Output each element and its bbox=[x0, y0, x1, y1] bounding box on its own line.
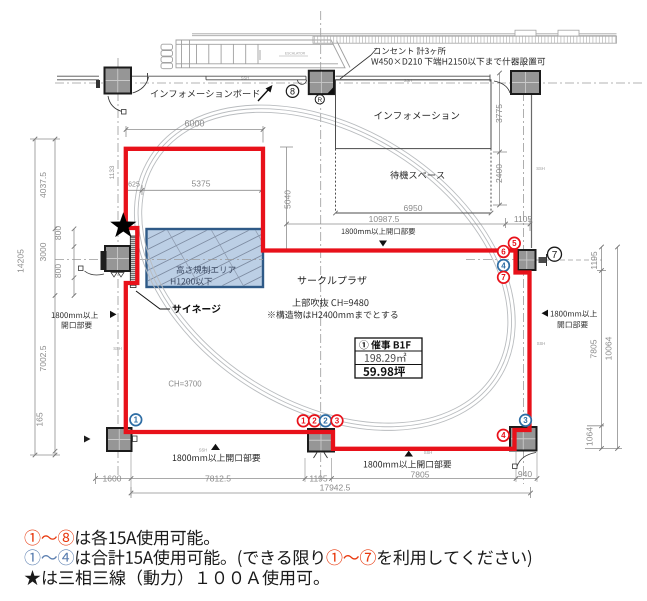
svg-text:7805: 7805 bbox=[589, 339, 599, 358]
svg-text:10064: 10064 bbox=[604, 336, 614, 360]
svg-text:940: 940 bbox=[518, 469, 532, 479]
svg-text:2400: 2400 bbox=[494, 164, 504, 183]
svg-text:CH=3700: CH=3700 bbox=[168, 380, 202, 389]
svg-text:R: R bbox=[318, 97, 323, 104]
svg-text:1133: 1133 bbox=[109, 165, 116, 179]
svg-text:3: 3 bbox=[523, 416, 528, 425]
svg-text:SSH: SSH bbox=[199, 448, 208, 453]
svg-text:4: 4 bbox=[501, 261, 506, 270]
svg-text:165: 165 bbox=[35, 412, 45, 426]
svg-text:6000: 6000 bbox=[184, 119, 204, 129]
svg-text:4: 4 bbox=[501, 431, 506, 440]
svg-text:SSH: SSH bbox=[537, 341, 546, 346]
svg-text:1195: 1195 bbox=[589, 251, 599, 270]
svg-text:10987.5: 10987.5 bbox=[369, 214, 400, 224]
svg-text:8: 8 bbox=[290, 87, 295, 97]
svg-text:7: 7 bbox=[501, 273, 506, 282]
svg-text:3000: 3000 bbox=[38, 242, 48, 261]
svg-text:625: 625 bbox=[128, 182, 140, 189]
svg-text:SSH: SSH bbox=[113, 346, 122, 351]
svg-text:ESCALATOR: ESCALATOR bbox=[285, 52, 306, 56]
svg-text:2: 2 bbox=[323, 417, 328, 426]
svg-text:6950: 6950 bbox=[404, 203, 423, 213]
svg-text:7: 7 bbox=[552, 250, 558, 261]
svg-text:5: 5 bbox=[512, 239, 517, 248]
svg-text:1: 1 bbox=[301, 417, 306, 426]
svg-text:4037.5: 4037.5 bbox=[38, 172, 48, 198]
svg-text:800: 800 bbox=[53, 226, 63, 240]
svg-text:1064: 1064 bbox=[585, 427, 595, 446]
svg-text:1600: 1600 bbox=[103, 474, 122, 484]
svg-text:3775: 3775 bbox=[494, 104, 504, 123]
svg-text:6: 6 bbox=[501, 247, 506, 256]
svg-text:2: 2 bbox=[312, 417, 317, 426]
svg-text:5040: 5040 bbox=[283, 190, 293, 209]
svg-text:1: 1 bbox=[134, 416, 139, 425]
svg-text:1105: 1105 bbox=[514, 214, 533, 224]
svg-text:800: 800 bbox=[53, 264, 63, 278]
svg-text:SSH: SSH bbox=[241, 76, 250, 81]
svg-text:7805: 7805 bbox=[411, 470, 430, 480]
svg-text:5375: 5375 bbox=[192, 179, 211, 189]
svg-text:3: 3 bbox=[335, 417, 340, 426]
svg-text:17942.5: 17942.5 bbox=[320, 483, 351, 493]
svg-text:14205: 14205 bbox=[16, 249, 26, 273]
svg-text:7812.5: 7812.5 bbox=[205, 474, 231, 484]
svg-text:SSH: SSH bbox=[536, 166, 545, 171]
svg-text:7002.5: 7002.5 bbox=[38, 345, 48, 371]
